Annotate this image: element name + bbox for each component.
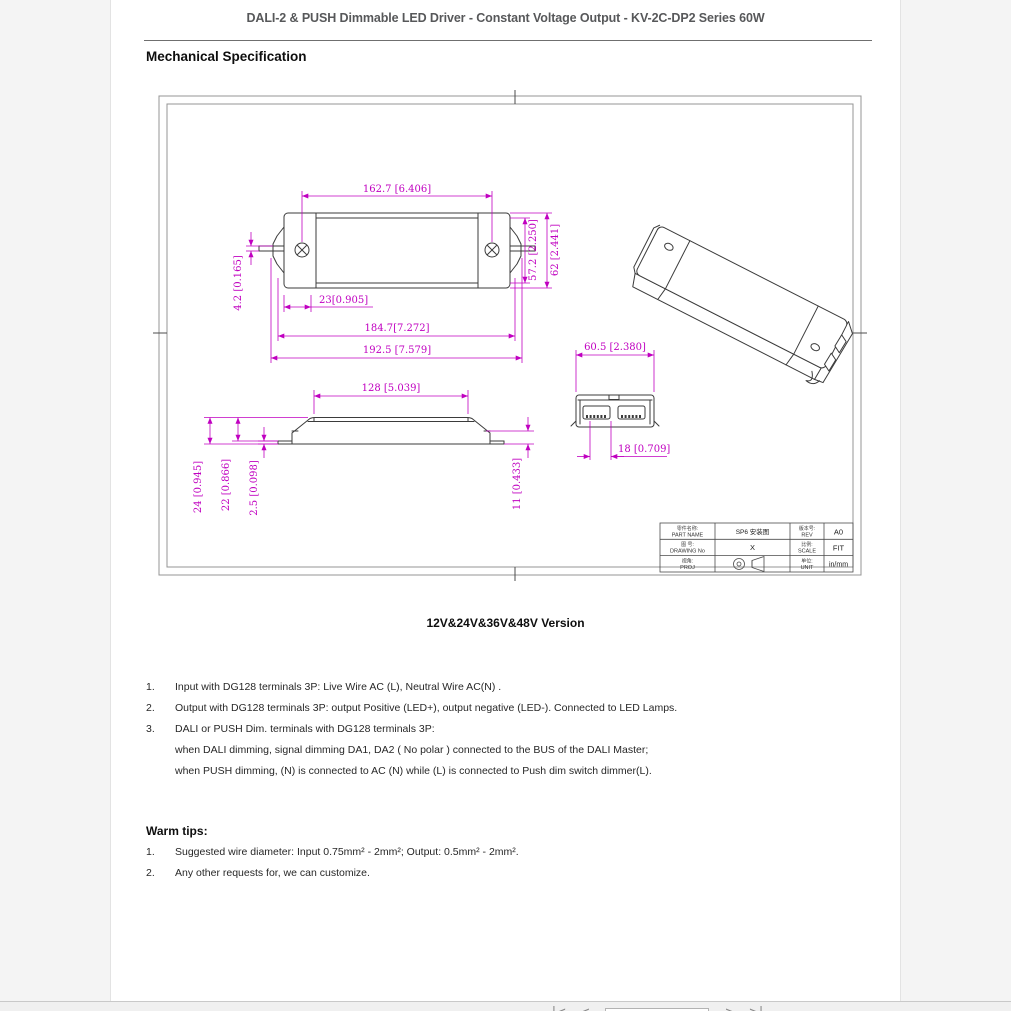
dim-128: 128 [5.039] — [362, 383, 421, 394]
mounting-ear-left — [259, 227, 284, 273]
list-item-number: 1. — [146, 846, 175, 858]
viewer-canvas: DALI-2 & PUSH Dimmable LED Driver - Cons… — [0, 0, 1011, 1011]
projection-symbol-icon — [734, 557, 765, 572]
terminal-block-right — [618, 406, 645, 419]
first-page-button[interactable]: |< — [550, 1005, 566, 1011]
scale-value: FIT — [833, 544, 845, 553]
list-item-text: Suggested wire diameter: Input 0.75mm² -… — [175, 846, 519, 858]
list-item: 1. Input with DG128 terminals 3P: Live W… — [146, 681, 861, 702]
part-name-value: SP6 安装图 — [736, 527, 770, 536]
scale-label-cn: 比例: — [801, 541, 812, 548]
list-item-number: 3. — [146, 723, 175, 735]
unit-label-cn: 单位: — [801, 558, 812, 565]
side-view — [278, 418, 504, 445]
top-view — [259, 213, 535, 288]
dim-162-7: 162.7 [6.406] — [363, 184, 431, 195]
unit-label-en: UNIT — [801, 565, 814, 571]
list-item: 1. Suggested wire diameter: Input 0.75mm… — [146, 846, 861, 867]
warm-tips-list: 1. Suggested wire diameter: Input 0.75mm… — [146, 846, 861, 888]
next-page-button[interactable]: > — [725, 1005, 733, 1011]
dim-18: 18 [0.709] — [618, 444, 670, 455]
dim-22: 22 [0.866] — [221, 459, 232, 511]
rev-label-cn: 版本号: — [799, 525, 815, 532]
version-caption: 12V&24V&36V&48V Version — [111, 616, 900, 630]
title-block: 零件名称: PART NAME SP6 安装图 版本号: REV A0 图 号:… — [660, 523, 853, 572]
part-name-label-en: PART NAME — [672, 533, 704, 539]
dim-11: 11 [0.433] — [512, 458, 523, 510]
list-item-number: 2. — [146, 867, 175, 879]
list-item-text: when PUSH dimming, (N) is connected to A… — [175, 765, 652, 777]
document-page: DALI-2 & PUSH Dimmable LED Driver - Cons… — [110, 0, 901, 1001]
dim-23: 23[0.905] — [319, 295, 368, 306]
proj-label-en: PROJ — [680, 565, 695, 571]
list-item-text: Output with DG128 terminals 3P: output P… — [175, 702, 677, 714]
dim-2-5: 2.5 [0.098] — [249, 460, 260, 516]
document-title: DALI-2 & PUSH Dimmable LED Driver - Cons… — [111, 11, 900, 25]
dim-24: 24 [0.945] — [193, 461, 204, 513]
list-item: 2. Output with DG128 terminals 3P: outpu… — [146, 702, 861, 723]
notes-list: 1. Input with DG128 terminals 3P: Live W… — [146, 681, 861, 786]
dim-192-5: 192.5 [7.579] — [363, 345, 431, 356]
header-divider — [144, 40, 872, 41]
warm-tips-heading: Warm tips: — [146, 824, 208, 838]
end-view — [571, 395, 659, 427]
terminal-block-left — [583, 406, 610, 419]
unit-value: in/mm — [829, 562, 848, 569]
list-item-number: 1. — [146, 681, 175, 693]
list-item: when DALI dimming, signal dimming DA1, D… — [146, 744, 861, 765]
part-name-label-cn: 零件名称: — [677, 525, 698, 532]
pager-toolbar: |< < > >| — [0, 1001, 1011, 1011]
list-item-text: DALI or PUSH Dim. terminals with DG128 t… — [175, 723, 435, 735]
drawing-no-label-en: DRAWING No — [670, 549, 705, 555]
dim-57-2: 57.2 [2.250] — [528, 219, 539, 281]
list-item-text: Input with DG128 terminals 3P: Live Wire… — [175, 681, 501, 693]
list-item-number: 2. — [146, 702, 175, 714]
side-view-dimensions: 128 [5.039] 24 [0.945] 22 [0.866] 2.5 [0… — [193, 383, 534, 516]
drawing-no-value: X — [750, 543, 755, 552]
dim-62: 62 [2.441] — [550, 224, 561, 276]
list-item: when PUSH dimming, (N) is connected to A… — [146, 765, 861, 786]
scale-label-en: SCALE — [798, 549, 816, 555]
dim-60-5: 60.5 [2.380] — [584, 342, 646, 353]
rev-value: A0 — [834, 528, 843, 537]
pager-controls: |< < > >| — [550, 1005, 765, 1011]
mechanical-drawing: 162.7 [6.406] 57.2 [2.250] 62 [2.441] 4.… — [146, 82, 876, 584]
proj-label-cn: 视角: — [682, 558, 693, 565]
rev-label-en: REV — [801, 533, 813, 539]
iso-view — [623, 223, 856, 390]
last-page-button[interactable]: >| — [749, 1005, 765, 1011]
dim-184-7: 184.7[7.272] — [364, 323, 429, 334]
list-item-text: Any other requests for, we can customize… — [175, 867, 370, 879]
dim-4-2: 4.2 [0.165] — [233, 255, 244, 311]
prev-page-button[interactable]: < — [582, 1005, 590, 1011]
list-item-text: when DALI dimming, signal dimming DA1, D… — [175, 744, 648, 756]
list-item: 2. Any other requests for, we can custom… — [146, 867, 861, 888]
list-item: 3. DALI or PUSH Dim. terminals with DG12… — [146, 723, 861, 744]
section-heading: Mechanical Specification — [146, 49, 307, 64]
drawing-no-label-cn: 图 号: — [681, 542, 694, 548]
